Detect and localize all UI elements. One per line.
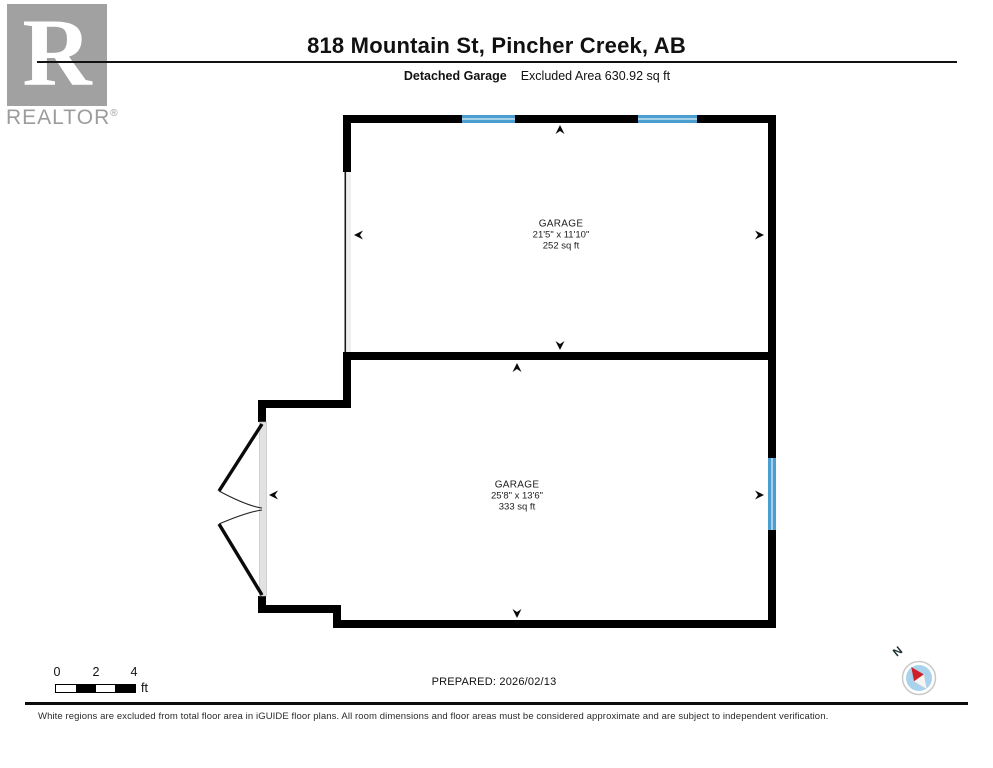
arrow-left-icon [269, 491, 278, 500]
arrow-down-icon [513, 609, 522, 618]
room-dimensions: 25'8" x 13'6" [491, 491, 543, 502]
walls [258, 115, 776, 628]
room-area: 252 sq ft [533, 241, 590, 252]
window-icon [462, 115, 776, 530]
arrow-down-icon [556, 341, 565, 350]
room-name: GARAGE [491, 480, 543, 491]
double-door-icon [219, 422, 267, 596]
room-area: 333 sq ft [491, 502, 543, 513]
header-divider [37, 61, 957, 63]
floorplan-page: R REALTOR® 818 Mountain St, Pincher Cree… [0, 0, 993, 768]
arrow-up-icon [513, 363, 522, 372]
arrow-left-icon [354, 231, 363, 240]
arrow-up-icon [556, 125, 565, 134]
open-wall-strip [347, 172, 352, 352]
room-name: GARAGE [533, 219, 590, 230]
arrow-right-icon [755, 491, 764, 500]
floor-plan-drawing [0, 0, 993, 768]
arrow-right-icon [755, 231, 764, 240]
room-dimensions: 21'5" x 11'10" [533, 230, 590, 241]
room-label-garage-lower: GARAGE 25'8" x 13'6" 333 sq ft [491, 480, 543, 513]
room-label-garage-upper: GARAGE 21'5" x 11'10" 252 sq ft [533, 219, 590, 252]
